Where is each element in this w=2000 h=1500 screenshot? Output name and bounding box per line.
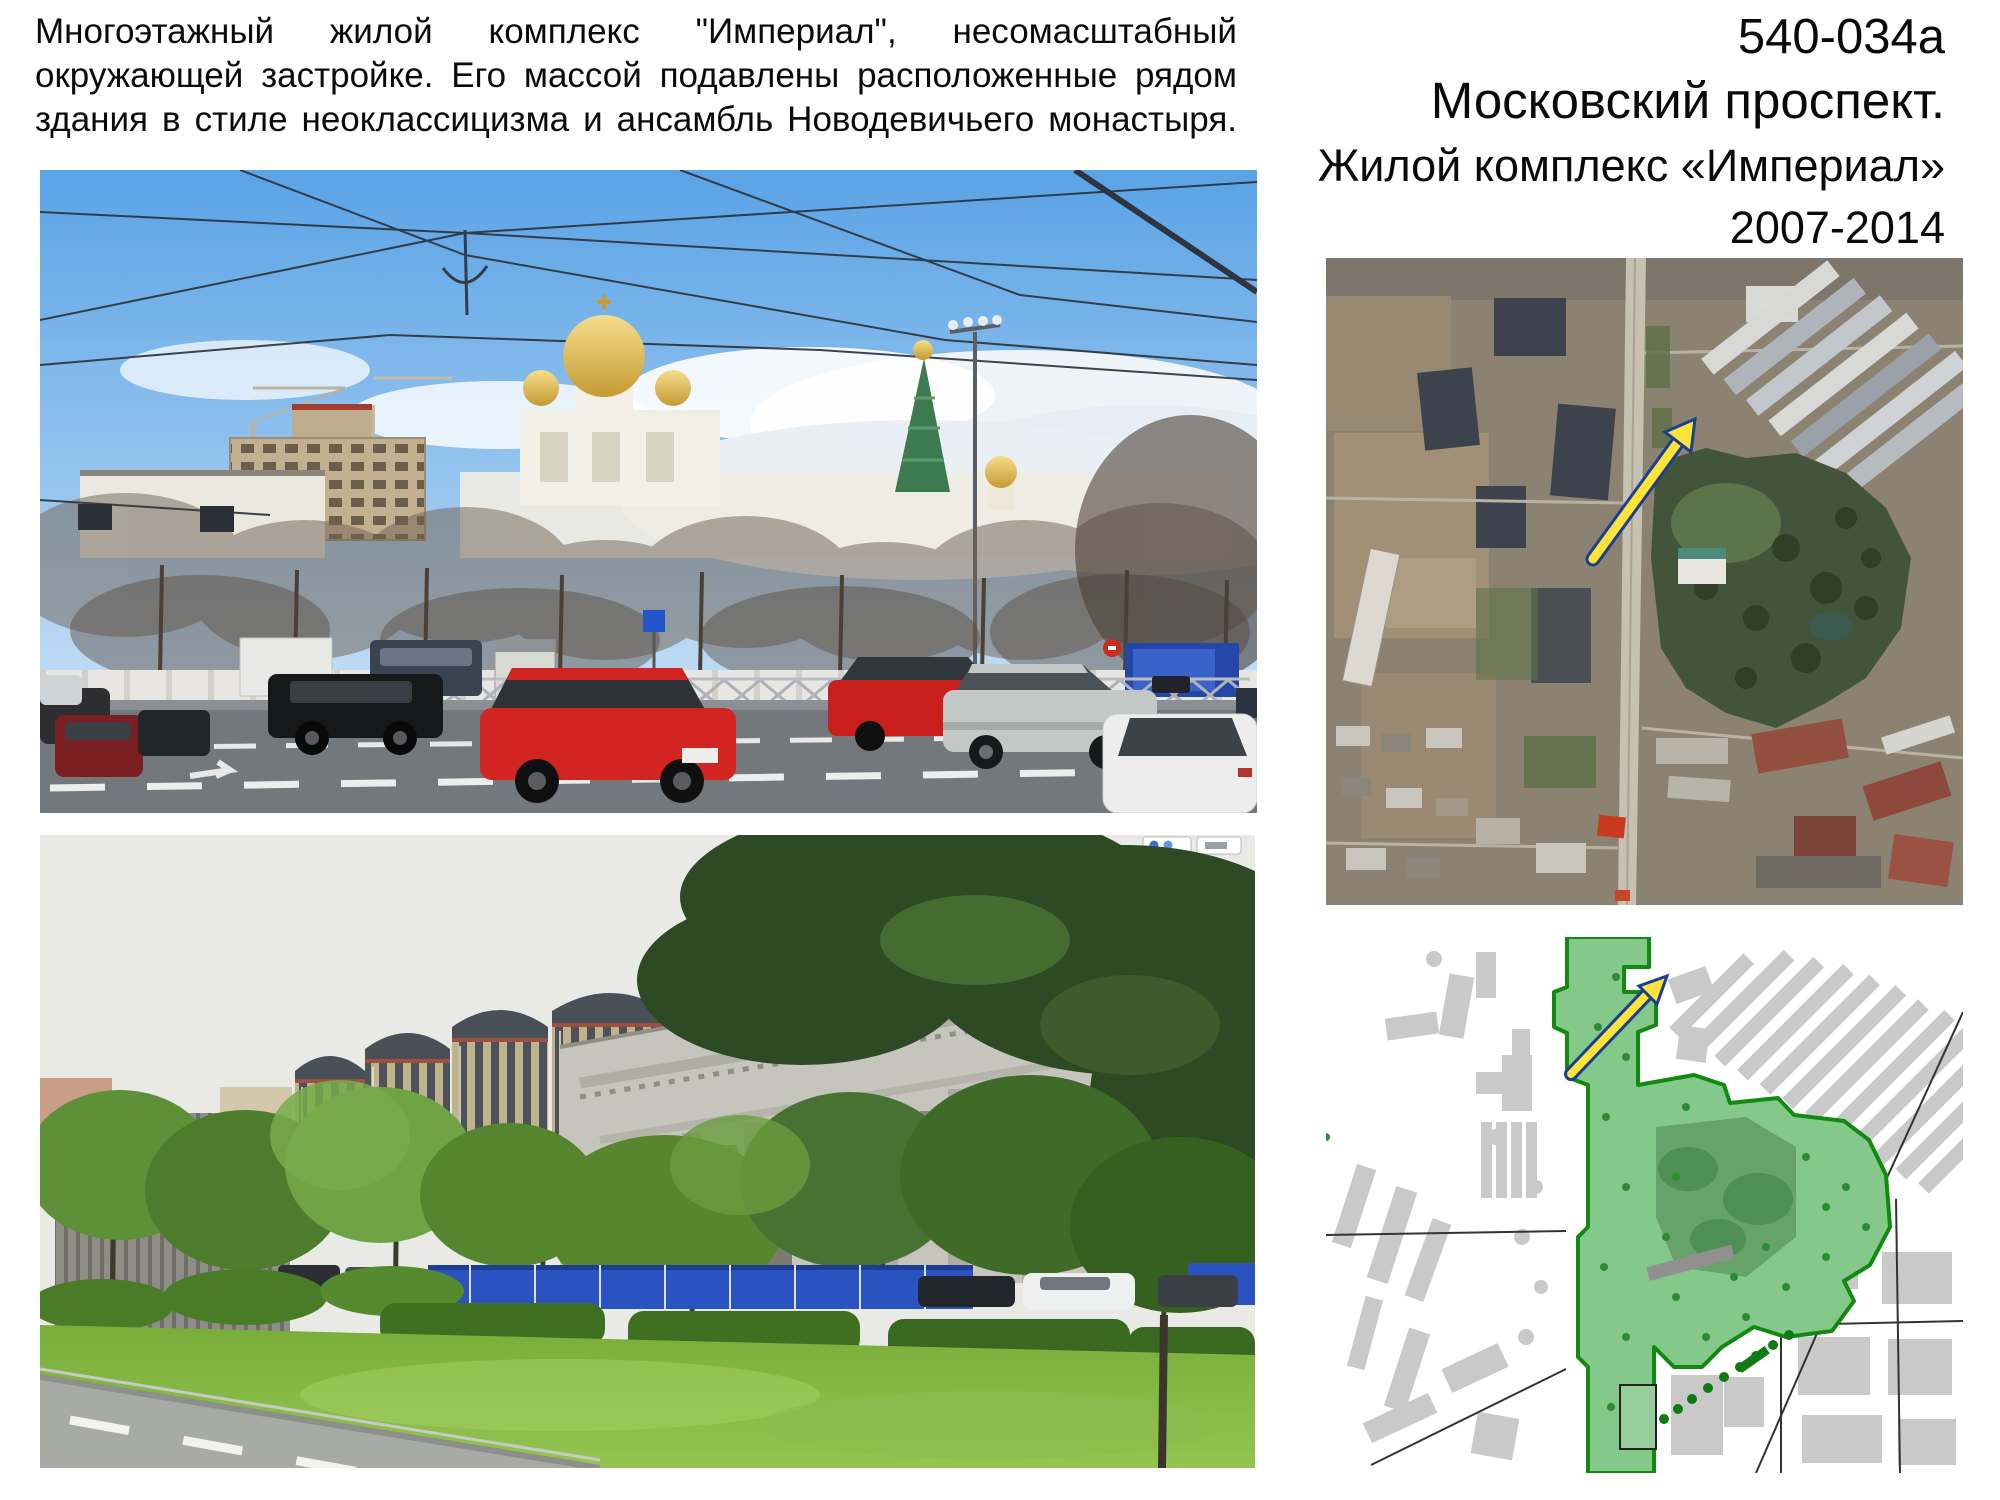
red-vehicle	[1615, 890, 1630, 901]
label-icon	[1205, 842, 1227, 849]
photo-street-summer	[40, 835, 1255, 1468]
satellite-art	[1326, 258, 1963, 905]
site-plan-art	[1326, 937, 1963, 1473]
photo-street-summer-art	[40, 835, 1255, 1468]
lawn-highlight	[300, 1359, 820, 1431]
kiosk-roof	[495, 640, 555, 652]
satellite-image	[1326, 258, 1963, 905]
no-entry-bar	[1108, 646, 1116, 650]
white-car-rear	[1103, 714, 1257, 813]
object-code: 540-034a	[995, 6, 1945, 68]
location-title: Московский проспект.	[995, 68, 1945, 134]
red-structure	[1597, 815, 1626, 839]
lawn-highlight2	[760, 1391, 1220, 1459]
photo-street-winter-art	[40, 170, 1257, 813]
photo-street-winter	[40, 170, 1257, 813]
distant-dark-car	[1152, 676, 1190, 693]
slide: Многоэтажныйжилойкомплекс"Империал",несо…	[0, 0, 2000, 1500]
cornice	[80, 470, 325, 476]
plot-outline	[1620, 1385, 1656, 1449]
foreground-trunk	[1162, 1315, 1164, 1468]
site-plan-map	[1326, 937, 1963, 1473]
